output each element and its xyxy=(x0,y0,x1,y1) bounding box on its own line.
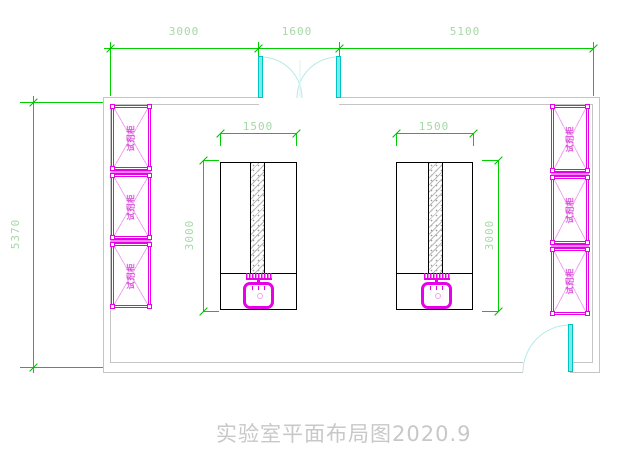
sink-grate-icon xyxy=(424,273,450,280)
corner-fitting xyxy=(110,166,115,171)
door-swing-arc xyxy=(297,57,338,98)
cabinet-label: 试剂柜 xyxy=(126,193,137,220)
cabinet-column-right: 试剂柜 试剂柜 试剂柜 xyxy=(551,105,589,315)
corner-fitting xyxy=(147,242,152,247)
sink-basin-icon xyxy=(421,282,452,309)
sink-tick xyxy=(430,286,431,290)
left-dimension-line xyxy=(33,96,34,373)
corner-fitting xyxy=(550,240,555,245)
cabinet-label: 试剂柜 xyxy=(126,124,137,151)
double-door-right-leaf xyxy=(336,56,341,98)
sink-tick xyxy=(442,286,443,290)
dim-text-top-middle: 1600 xyxy=(275,25,319,38)
sink-grate-icon xyxy=(246,273,272,280)
reagent-cabinet: 试剂柜 xyxy=(551,105,589,172)
corner-fitting xyxy=(110,235,115,240)
sink-drain-icon xyxy=(257,293,263,299)
bench-left-depth-dim-line xyxy=(203,160,204,312)
reagent-cabinet: 试剂柜 xyxy=(111,174,151,239)
lab-bench-left xyxy=(220,162,297,310)
bench-left-width-dim-line xyxy=(220,133,297,134)
drawing-title: 实验室平面布局图2020.9 xyxy=(216,418,471,448)
dim-text-bench-right-width: 1500 xyxy=(412,120,456,133)
corner-fitting xyxy=(147,104,152,109)
bench-right-width-dim-line xyxy=(396,133,473,134)
corner-fitting xyxy=(585,168,590,173)
reagent-cabinet: 试剂柜 xyxy=(111,243,151,308)
corner-fitting xyxy=(147,235,152,240)
corner-fitting xyxy=(585,104,590,109)
cabinet-label: 试剂柜 xyxy=(126,262,137,289)
sink-bottom-bar xyxy=(430,306,446,309)
cabinet-label: 试剂柜 xyxy=(565,125,576,152)
door-swing-arc xyxy=(523,325,570,372)
reagent-cabinet: 试剂柜 xyxy=(111,105,151,170)
cabinet-column-left: 试剂柜 试剂柜 试剂柜 xyxy=(111,105,151,308)
double-door-left-leaf xyxy=(258,56,263,98)
corner-fitting xyxy=(147,173,152,178)
sink-tick xyxy=(252,286,253,290)
corner-fitting xyxy=(110,173,115,178)
door-swing-arcs xyxy=(0,0,619,469)
sink-tick xyxy=(436,286,437,290)
extension-line xyxy=(204,311,219,312)
corner-fitting xyxy=(550,175,555,180)
extension-line xyxy=(396,134,397,146)
corner-fitting xyxy=(110,242,115,247)
sink-tick xyxy=(264,286,265,290)
dim-text-top-right: 5100 xyxy=(443,25,487,38)
cabinet-label: 试剂柜 xyxy=(565,268,576,295)
dim-text-bench-left-width: 1500 xyxy=(236,120,280,133)
sink-basin-icon xyxy=(243,282,274,309)
dim-text-left: 5370 xyxy=(9,212,21,256)
corner-fitting xyxy=(147,166,152,171)
extension-line xyxy=(593,42,594,96)
door-swing-arc xyxy=(261,57,302,98)
floor-plan-drawing: 3000 1600 5100 5370 试剂柜 试剂柜 试剂柜 xyxy=(0,0,619,469)
corner-fitting xyxy=(550,168,555,173)
sink-bottom-bar xyxy=(252,306,268,309)
dim-text-bench-left-depth: 3000 xyxy=(183,213,195,257)
extension-line xyxy=(296,134,297,146)
corner-fitting xyxy=(585,311,590,316)
cabinet-label: 试剂柜 xyxy=(565,196,576,223)
extension-line xyxy=(473,134,474,146)
corner-fitting xyxy=(550,247,555,252)
corner-fitting xyxy=(110,304,115,309)
single-door-leaf xyxy=(568,324,573,372)
extension-line xyxy=(204,160,219,161)
corner-fitting xyxy=(147,304,152,309)
corner-fitting xyxy=(110,104,115,109)
corner-fitting xyxy=(550,104,555,109)
corner-fitting xyxy=(585,247,590,252)
extension-line xyxy=(220,134,221,146)
extension-line xyxy=(110,42,111,96)
reagent-cabinet: 试剂柜 xyxy=(551,176,589,243)
bench-service-strip xyxy=(428,163,443,273)
lab-bench-right xyxy=(396,162,473,310)
reagent-cabinet: 试剂柜 xyxy=(551,248,589,315)
sink-drain-icon xyxy=(435,293,441,299)
corner-fitting xyxy=(550,311,555,316)
corner-fitting xyxy=(585,175,590,180)
bench-right-depth-dim-line xyxy=(498,160,499,312)
dim-text-bench-right-depth: 3000 xyxy=(483,213,495,257)
sink-tick xyxy=(258,286,259,290)
corner-fitting xyxy=(585,240,590,245)
dim-text-top-left: 3000 xyxy=(162,25,206,38)
top-dimension-line xyxy=(104,48,594,49)
bench-service-strip xyxy=(250,163,265,273)
